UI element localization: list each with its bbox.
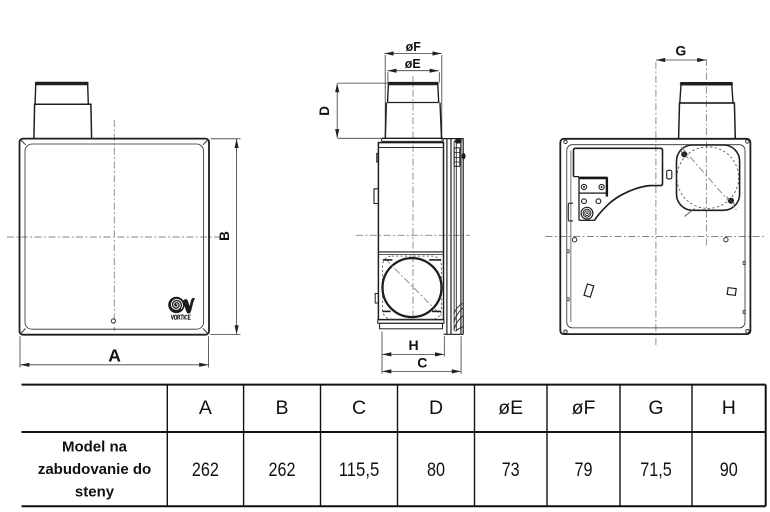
svg-text:zabudovanie do: zabudovanie do xyxy=(38,461,151,478)
svg-text:B: B xyxy=(217,231,232,241)
svg-text:80: 80 xyxy=(427,459,445,481)
svg-text:B: B xyxy=(275,397,288,419)
svg-text:Model na: Model na xyxy=(62,438,128,455)
svg-text:steny: steny xyxy=(75,483,115,500)
svg-text:D: D xyxy=(317,106,332,116)
svg-text:90: 90 xyxy=(720,459,738,481)
svg-text:H: H xyxy=(722,397,736,419)
svg-text:262: 262 xyxy=(269,459,296,481)
svg-text:øF: øF xyxy=(572,397,596,419)
svg-text:G: G xyxy=(675,43,686,59)
svg-text:79: 79 xyxy=(575,459,593,481)
svg-text:262: 262 xyxy=(192,459,219,481)
svg-text:A: A xyxy=(108,346,121,366)
svg-text:C: C xyxy=(417,354,427,370)
svg-text:G: G xyxy=(648,397,663,419)
svg-text:73: 73 xyxy=(502,459,520,481)
svg-text:øE: øE xyxy=(405,57,421,71)
svg-text:øE: øE xyxy=(498,397,523,419)
svg-text:115,5: 115,5 xyxy=(339,459,380,481)
svg-text:A: A xyxy=(199,397,212,419)
svg-text:øF: øF xyxy=(406,40,422,54)
svg-text:C: C xyxy=(352,397,366,419)
svg-text:H: H xyxy=(408,337,418,353)
svg-text:71,5: 71,5 xyxy=(640,459,672,481)
svg-text:D: D xyxy=(429,397,443,419)
